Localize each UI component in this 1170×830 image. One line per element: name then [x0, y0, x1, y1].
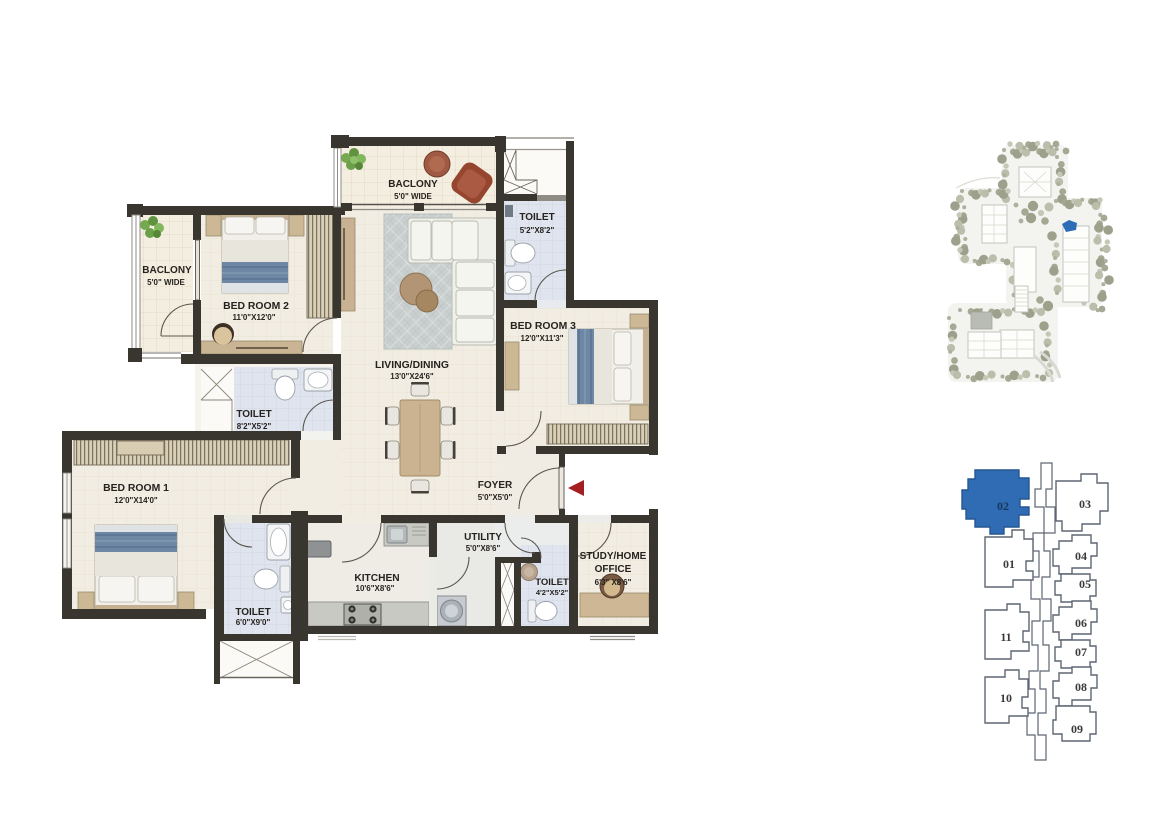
svg-text:10'6"X8'6": 10'6"X8'6" [356, 584, 395, 593]
svg-text:TOILET: TOILET [519, 212, 554, 223]
svg-text:5'0" WIDE: 5'0" WIDE [147, 278, 185, 287]
svg-text:KITCHEN: KITCHEN [354, 573, 399, 584]
svg-text:5'0" WIDE: 5'0" WIDE [394, 192, 432, 201]
svg-text:LIVING/DINING: LIVING/DINING [375, 360, 449, 371]
svg-text:08: 08 [1075, 680, 1087, 694]
svg-text:05: 05 [1079, 577, 1091, 591]
svg-text:5'0"X5'0": 5'0"X5'0" [478, 493, 513, 502]
svg-text:8'2"X5'2": 8'2"X5'2" [237, 422, 272, 431]
svg-text:6'3" X8'6": 6'3" X8'6" [595, 578, 632, 587]
svg-text:BED ROOM 2: BED ROOM 2 [223, 301, 289, 312]
svg-text:BACLONY: BACLONY [142, 265, 192, 276]
svg-text:07: 07 [1075, 645, 1087, 659]
svg-text:BED ROOM 1: BED ROOM 1 [103, 483, 169, 494]
svg-text:12'0"X14'0": 12'0"X14'0" [114, 496, 158, 505]
svg-text:5'0"X8'6": 5'0"X8'6" [466, 544, 501, 553]
svg-text:UTILITY: UTILITY [464, 532, 502, 543]
svg-text:OFFICE: OFFICE [595, 564, 632, 575]
svg-text:11: 11 [1000, 630, 1011, 644]
svg-text:6'0"X9'0": 6'0"X9'0" [236, 618, 271, 627]
svg-text:09: 09 [1071, 722, 1083, 736]
svg-text:TOILET: TOILET [235, 607, 270, 618]
svg-text:4'2"X5'2": 4'2"X5'2" [536, 588, 569, 597]
svg-text:11'0"X12'0": 11'0"X12'0" [233, 313, 276, 322]
svg-text:5'2"X8'2": 5'2"X8'2" [520, 226, 555, 235]
svg-text:04: 04 [1075, 549, 1087, 563]
svg-text:10: 10 [1000, 691, 1012, 705]
svg-text:13'0"X24'6": 13'0"X24'6" [390, 372, 434, 381]
svg-text:06: 06 [1075, 616, 1087, 630]
svg-text:TOILET: TOILET [535, 577, 569, 588]
svg-text:12'0"X11'3": 12'0"X11'3" [521, 334, 564, 343]
svg-text:TOILET: TOILET [236, 409, 271, 420]
svg-text:BACLONY: BACLONY [388, 179, 438, 190]
svg-text:BED ROOM 3: BED ROOM 3 [510, 321, 576, 332]
svg-text:STUDY/HOME: STUDY/HOME [580, 551, 647, 562]
svg-text:02: 02 [997, 499, 1009, 513]
svg-text:01: 01 [1003, 557, 1015, 571]
svg-text:FOYER: FOYER [478, 480, 513, 491]
svg-text:03: 03 [1079, 497, 1091, 511]
